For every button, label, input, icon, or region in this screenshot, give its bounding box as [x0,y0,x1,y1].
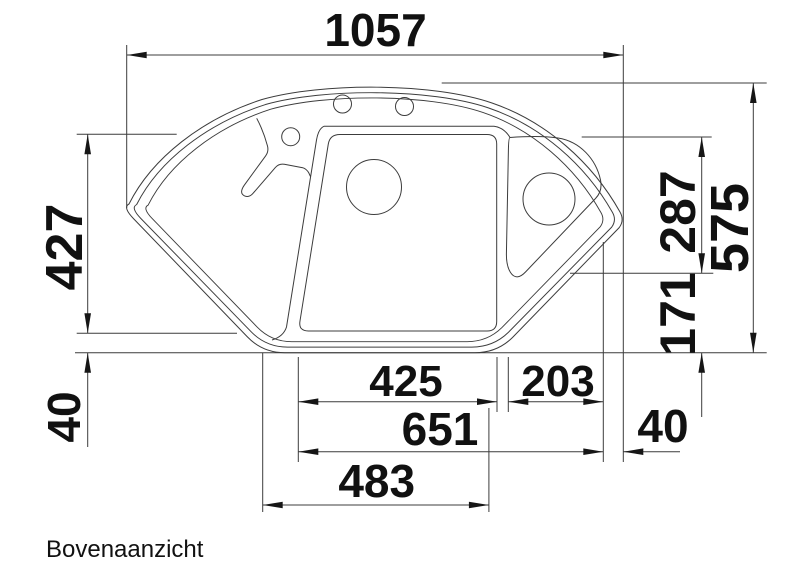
dim-label-rim-left: 40 [38,391,90,442]
sink-outline [127,87,623,353]
dim-label-overall-depth: 575 [700,183,760,273]
tap-console-hole [282,128,300,146]
dim-label-main-bowl-width: 425 [369,357,442,406]
dim-label-bowl-zone-depth: 427 [36,204,94,291]
divider-and-band-line [272,126,510,340]
dim-label-lower-right-depth: 171 [650,272,706,355]
technical-drawing-page: 1057 427 40 575 287 171 425 203 651 40 4… [0,0,800,582]
dim-label-bottom-edge-width: 483 [338,455,415,507]
main-bowl [300,135,497,332]
dim-label-corner-bowl-depth: 287 [650,170,706,253]
corner-bowl [506,137,601,277]
sink-rim-line-mid [134,93,614,347]
dim-label-overall-width: 1057 [324,4,426,56]
main-bowl-drain-hole [347,160,402,215]
sink-outer-edge [127,87,623,353]
tap-hole-left [334,95,352,113]
sink-dimension-drawing: 1057 427 40 575 287 171 425 203 651 40 4… [0,0,800,582]
corner-bowl-drain-hole [523,173,575,225]
dim-label-rim-right: 40 [637,400,688,452]
dim-label-bowls-combined-width: 651 [402,403,479,455]
view-caption: Bovenaanzicht [46,536,203,564]
dimension-labels: 1057 427 40 575 287 171 425 203 651 40 4… [36,4,760,507]
tap-console [242,118,311,196]
tap-hole-right [396,98,414,116]
dim-label-corner-bowl-width: 203 [521,357,594,406]
